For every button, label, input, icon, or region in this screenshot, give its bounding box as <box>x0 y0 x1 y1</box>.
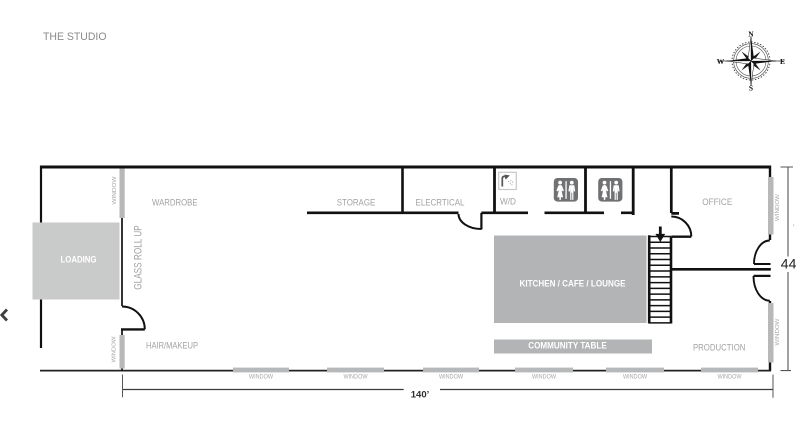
svg-text:S: S <box>749 84 753 93</box>
svg-text:LOADING: LOADING <box>61 255 97 266</box>
svg-text:140’: 140’ <box>411 389 430 400</box>
svg-text:W/D: W/D <box>500 196 516 207</box>
svg-text:WINDOW: WINDOW <box>112 176 118 205</box>
svg-text:WINDOW: WINDOW <box>775 193 781 221</box>
svg-text:HAIR/MAKEUP: HAIR/MAKEUP <box>146 341 198 352</box>
svg-text:WINDOW: WINDOW <box>249 374 273 380</box>
svg-text:N: N <box>748 30 754 39</box>
svg-text:PRODUCTION: PRODUCTION <box>693 343 746 354</box>
svg-text:STORAGE: STORAGE <box>337 197 376 208</box>
svg-text:WINDOW: WINDOW <box>718 374 742 380</box>
svg-text:WARDROBE: WARDROBE <box>152 197 198 208</box>
svg-text:WINDOW: WINDOW <box>623 374 647 380</box>
svg-text:WINDOW: WINDOW <box>439 374 463 380</box>
svg-text:44: 44 <box>781 256 797 272</box>
svg-text:KITCHEN / CAFE / LOUNGE: KITCHEN / CAFE / LOUNGE <box>520 278 626 289</box>
svg-text:COMMUNITY TABLE: COMMUNITY TABLE <box>528 340 607 351</box>
svg-text:E: E <box>780 57 785 66</box>
svg-text:WINDOW: WINDOW <box>532 374 556 380</box>
svg-text:THE STUDIO: THE STUDIO <box>43 31 107 43</box>
svg-text:W: W <box>717 57 725 66</box>
svg-text:WINDOW: WINDOW <box>775 318 781 346</box>
svg-text:OFFICE: OFFICE <box>702 197 732 208</box>
svg-text:WINDOW: WINDOW <box>344 374 368 380</box>
svg-text:GLASS ROLL UP: GLASS ROLL UP <box>133 225 145 290</box>
svg-text:ELECRTICAL: ELECRTICAL <box>416 197 465 208</box>
svg-text:WINDOW: WINDOW <box>111 336 117 363</box>
